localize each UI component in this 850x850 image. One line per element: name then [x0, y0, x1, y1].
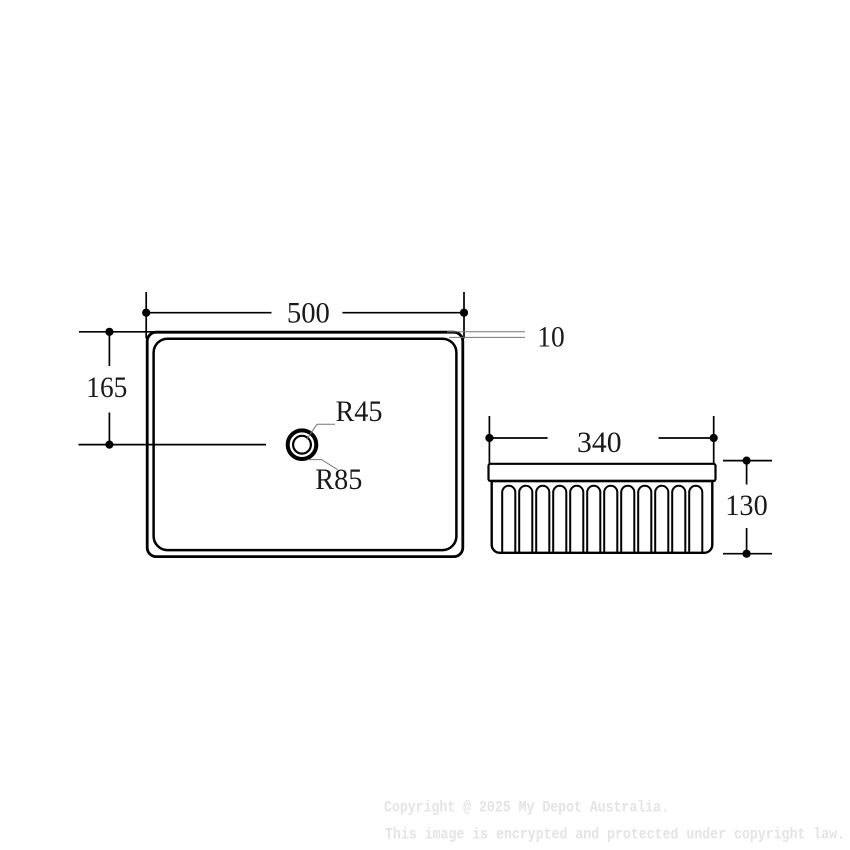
svg-text:R85: R85 [315, 463, 362, 496]
svg-text:R45: R45 [336, 395, 383, 428]
svg-text:340: 340 [577, 426, 622, 459]
svg-text:Copyright @ 2025 My Depot Aust: Copyright @ 2025 My Depot Australia. [384, 799, 669, 817]
svg-text:10: 10 [537, 321, 565, 354]
svg-text:130: 130 [725, 489, 768, 522]
svg-text:500: 500 [287, 296, 330, 329]
svg-text:This image is encrypted and pr: This image is encrypted and protected un… [385, 825, 845, 843]
svg-text:165: 165 [86, 371, 127, 404]
